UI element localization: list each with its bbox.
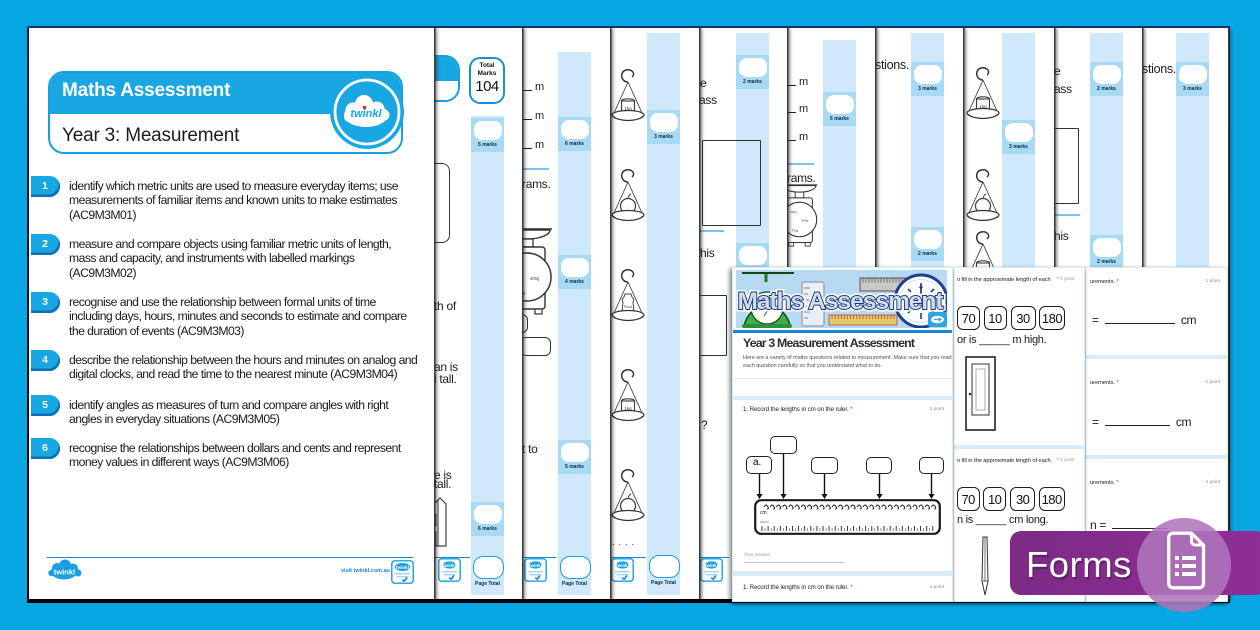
svg-text:twinkl: twinkl xyxy=(760,520,769,524)
svg-text:twinkl: twinkl xyxy=(350,108,382,120)
svg-text:twinkl: twinkl xyxy=(396,565,409,570)
svg-text:Maths Assessment: Maths Assessment xyxy=(737,288,943,315)
svg-text:twinkl: twinkl xyxy=(54,568,75,577)
svg-text:cm: cm xyxy=(760,510,767,516)
